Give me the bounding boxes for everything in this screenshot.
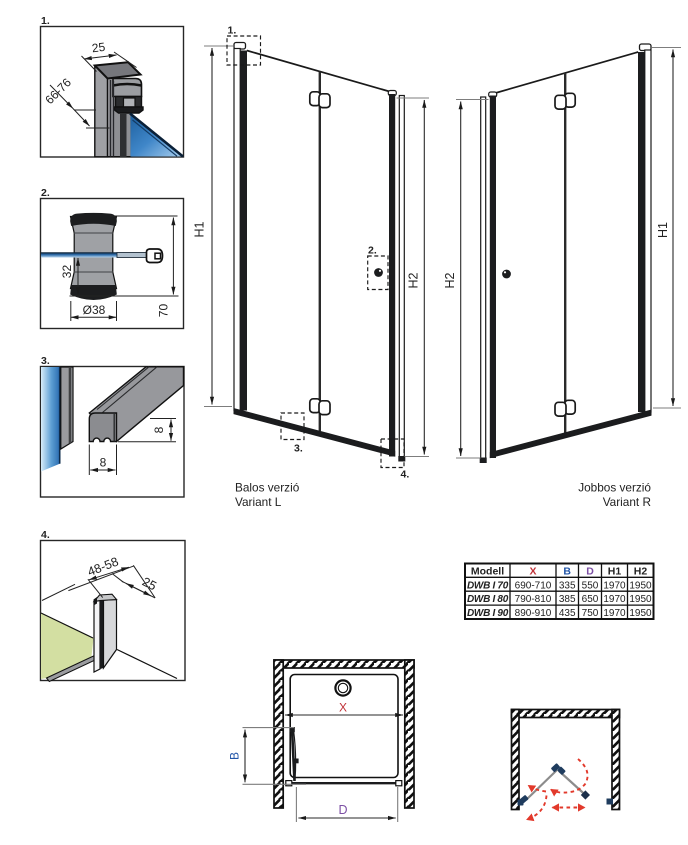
svg-text:H1: H1	[656, 222, 670, 238]
svg-text:435: 435	[559, 608, 576, 619]
svg-text:4.: 4.	[41, 529, 50, 541]
svg-text:B: B	[563, 566, 571, 578]
svg-text:D: D	[586, 566, 594, 578]
svg-text:650: 650	[582, 594, 599, 605]
svg-text:2.: 2.	[41, 187, 50, 199]
svg-text:H1: H1	[608, 566, 622, 578]
svg-text:8: 8	[100, 456, 107, 470]
svg-text:8: 8	[152, 426, 166, 433]
svg-text:H1: H1	[193, 221, 207, 237]
svg-text:1950: 1950	[629, 608, 652, 619]
svg-text:1970: 1970	[603, 580, 626, 591]
svg-text:DWB I 80: DWB I 80	[467, 594, 509, 605]
svg-text:H2: H2	[443, 272, 457, 288]
svg-text:Balos verzió: Balos verzió	[235, 481, 300, 495]
svg-text:X: X	[529, 566, 536, 578]
svg-text:3.: 3.	[294, 443, 303, 455]
svg-text:Jobbos verzió: Jobbos verzió	[578, 481, 651, 495]
svg-text:X: X	[339, 701, 347, 715]
svg-text:690-710: 690-710	[515, 580, 552, 591]
svg-text:1.: 1.	[228, 25, 237, 37]
svg-text:Modell: Modell	[471, 566, 504, 578]
svg-text:790-810: 790-810	[515, 594, 552, 605]
svg-text:Variant L: Variant L	[235, 495, 282, 509]
svg-text:550: 550	[582, 580, 599, 591]
svg-text:Ø38: Ø38	[83, 303, 106, 317]
svg-text:H2: H2	[634, 566, 648, 578]
svg-text:1970: 1970	[603, 594, 626, 605]
svg-text:1950: 1950	[629, 594, 652, 605]
svg-text:1950: 1950	[629, 580, 652, 591]
svg-text:D: D	[338, 803, 347, 817]
svg-text:335: 335	[559, 580, 576, 591]
svg-text:B: B	[228, 752, 242, 760]
svg-text:2.: 2.	[368, 245, 377, 257]
svg-text:1970: 1970	[603, 608, 626, 619]
svg-text:H2: H2	[407, 272, 421, 288]
svg-text:4.: 4.	[401, 469, 410, 481]
svg-text:1.: 1.	[41, 15, 50, 27]
svg-text:25: 25	[91, 40, 106, 56]
svg-text:70: 70	[157, 304, 171, 318]
svg-text:3.: 3.	[41, 355, 50, 367]
svg-text:890-910: 890-910	[515, 608, 552, 619]
svg-text:Variant R: Variant R	[603, 495, 651, 509]
svg-text:32: 32	[60, 265, 74, 279]
svg-text:DWB I 70: DWB I 70	[467, 580, 509, 591]
svg-text:385: 385	[559, 594, 576, 605]
svg-text:750: 750	[582, 608, 599, 619]
svg-text:DWB I 90: DWB I 90	[467, 608, 509, 619]
